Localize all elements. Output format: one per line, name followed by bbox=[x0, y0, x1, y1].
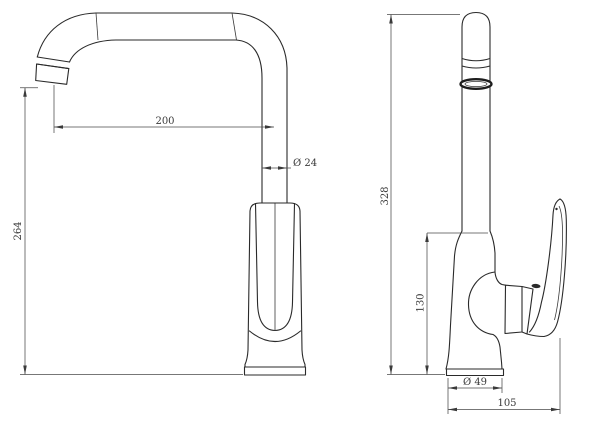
front-nozzle-body bbox=[36, 64, 69, 84]
side-riser-tube bbox=[462, 13, 490, 232]
side-dim-130-label: 130 bbox=[416, 293, 427, 312]
side-dim-o49-arrow-left bbox=[448, 386, 457, 390]
side-dim-o49-label: Ø 49 bbox=[463, 377, 487, 388]
side-view: 328 130 Ø 49 105 bbox=[380, 13, 566, 415]
front-dim-264-arrow-bottom bbox=[23, 366, 27, 375]
front-base-plate bbox=[245, 367, 306, 375]
side-dim-328-arrow-bottom bbox=[389, 366, 393, 375]
front-dim-200-label: 200 bbox=[155, 116, 174, 127]
side-handle-connector bbox=[522, 287, 533, 335]
front-view: 200 Ø 24 264 bbox=[13, 13, 317, 375]
side-dim-130-arrow-bottom bbox=[425, 366, 429, 375]
front-dim-264-arrow-top bbox=[23, 88, 27, 97]
side-dim-105-arrow-right bbox=[551, 408, 560, 412]
side-handle-notch-mark bbox=[555, 208, 557, 210]
side-handle-bottom-edge bbox=[527, 334, 544, 337]
front-dim-tube-diameter: Ø 24 bbox=[262, 158, 317, 170]
side-body-lower-right-edge bbox=[493, 335, 502, 370]
front-body-lower-arc bbox=[250, 331, 301, 342]
side-body-right-edge bbox=[490, 231, 506, 285]
side-dim-overall-height: 328 bbox=[380, 15, 460, 375]
front-dim-spout-reach: 200 bbox=[54, 85, 274, 133]
front-nozzle-joint-line bbox=[37, 57, 69, 62]
front-dim-264-label: 264 bbox=[13, 221, 24, 240]
front-dim-outlet-height: 264 bbox=[13, 88, 243, 375]
side-body-left-edge bbox=[446, 231, 462, 369]
technical-drawing-canvas: 200 Ø 24 264 bbox=[0, 0, 600, 426]
front-spout-outer-edge bbox=[37, 13, 287, 203]
side-tube-band-lower bbox=[462, 66, 490, 68]
front-tube-tangent-tick-right bbox=[232, 13, 237, 40]
side-body-sphere-arc bbox=[468, 272, 495, 335]
side-handle-blade-inner-edge bbox=[530, 199, 561, 332]
side-dim-328-arrow-top bbox=[389, 15, 393, 24]
side-dim-105-label: 105 bbox=[497, 398, 516, 409]
front-dim-200-arrow-left bbox=[54, 125, 63, 129]
front-dim-o24-label: Ø 24 bbox=[293, 158, 317, 169]
faucet-technical-drawing: 200 Ø 24 264 bbox=[0, 0, 600, 426]
side-base-plate bbox=[447, 369, 504, 376]
front-dim-o24-arrow-left bbox=[262, 166, 271, 170]
side-dim-o49-arrow-right bbox=[493, 386, 502, 390]
side-dim-105-arrow-left bbox=[448, 408, 457, 412]
side-tube-band-upper bbox=[462, 59, 490, 61]
side-cartridge-housing bbox=[505, 285, 522, 333]
side-dim-130-arrow-top bbox=[425, 233, 429, 242]
side-dim-328-label: 328 bbox=[380, 186, 391, 205]
side-handle-indicator-dot bbox=[531, 283, 540, 288]
front-tube-tangent-tick-left bbox=[96, 13, 98, 40]
front-dim-200-arrow-right bbox=[265, 125, 274, 129]
front-dim-o24-arrow-right bbox=[278, 166, 287, 170]
